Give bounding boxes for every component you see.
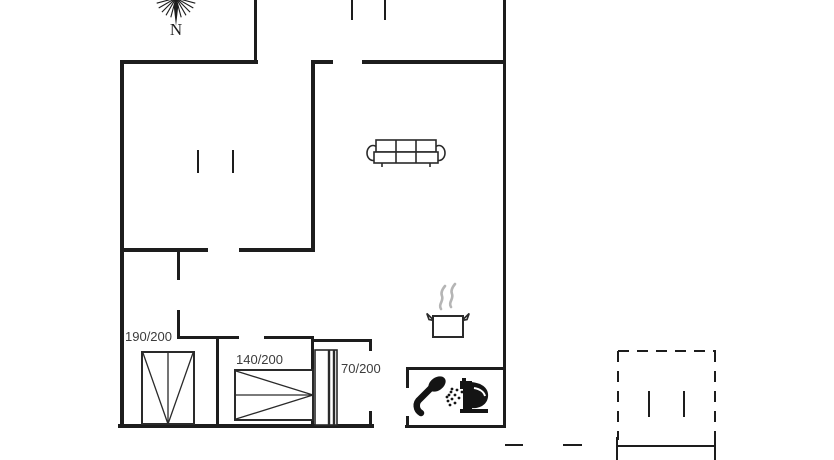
cooking-pot-icon	[426, 282, 474, 340]
wall-bedroom3-east-b	[369, 411, 372, 426]
bed-icon	[234, 369, 314, 421]
wall-bedroom1-east-a	[177, 250, 180, 280]
sofa-icon	[366, 138, 446, 168]
bed-icon	[141, 351, 195, 425]
wall-bedroom1-north	[177, 336, 239, 339]
wall-exterior-right	[503, 0, 506, 428]
wall-bedroom2-north	[264, 336, 314, 339]
wall-living-west	[311, 60, 315, 252]
toilet-icon	[459, 378, 493, 416]
bed-size-label: 70/200	[341, 362, 381, 376]
wall-bathroom-west-a	[406, 367, 409, 388]
terrace-outline	[608, 344, 726, 460]
shower-icon	[413, 374, 465, 418]
wall-bathroom-west-b	[406, 416, 409, 426]
boundary-dash	[505, 444, 523, 446]
wall-bedroom3-north	[311, 339, 372, 342]
wall-top-middle-b	[362, 60, 505, 64]
boundary-dash	[563, 444, 582, 446]
wall-bedroom1-east-b	[177, 310, 180, 338]
wall-bedroom3-east-a	[369, 339, 372, 351]
window-tick	[232, 150, 234, 173]
bed-size-label: 140/200	[236, 353, 283, 367]
window-tick	[384, 0, 386, 20]
window-tick	[351, 0, 353, 20]
bed-icon	[314, 349, 338, 426]
bed-size-label: 190/200	[125, 330, 172, 344]
wall-bathroom-north	[406, 367, 505, 370]
wall-exterior-left	[120, 60, 124, 428]
wall-top-left-wing	[120, 60, 258, 64]
wall-exterior-bottom-bath	[405, 425, 505, 428]
wall-bedroom-divider	[216, 338, 219, 426]
compass-north-label: N	[156, 20, 196, 40]
wall-hall-north-a	[120, 248, 208, 252]
wall-top-left-wing-right	[254, 0, 257, 62]
floor-plan: N	[0, 0, 834, 460]
wall-hall-north-b	[239, 248, 315, 252]
window-tick	[197, 150, 199, 173]
